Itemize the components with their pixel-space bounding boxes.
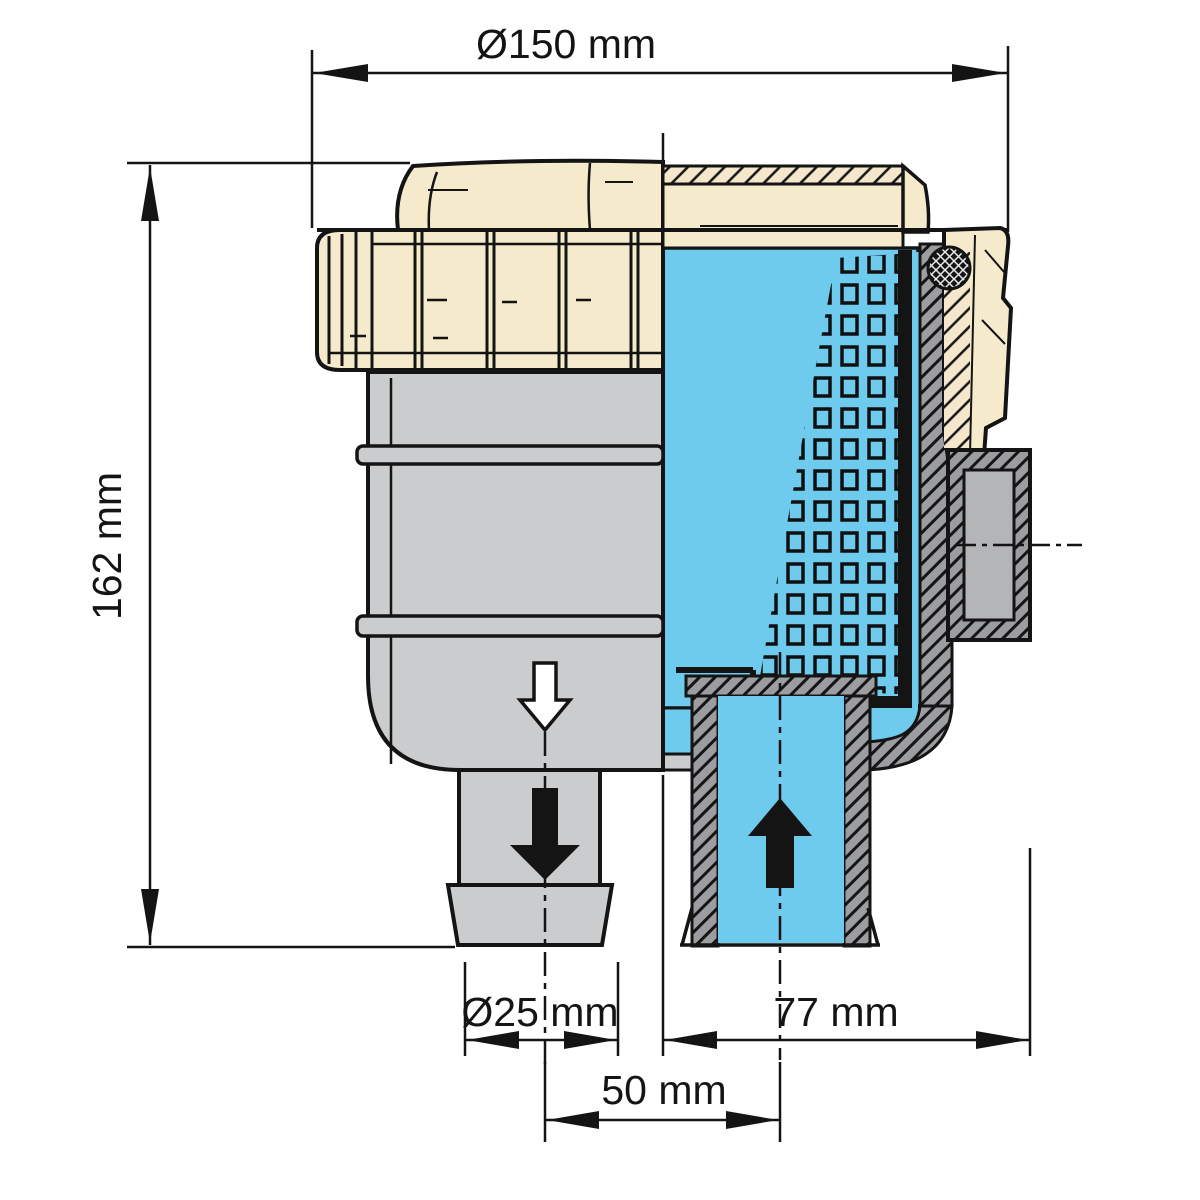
water-pocket bbox=[663, 708, 692, 756]
dim-arrow-left-icon bbox=[665, 1031, 717, 1049]
dim-label-spigot-spacing: 50 mm bbox=[601, 1067, 726, 1113]
dim-arrow-right-icon bbox=[952, 64, 1006, 82]
technical-diagram-water-strainer: Ø150 mm 162 mm Ø25 mm 77 mm 50 mm bbox=[0, 0, 1200, 1200]
dim-label-lid-diameter: Ø150 mm bbox=[476, 21, 656, 67]
dim-arrow-down-icon bbox=[141, 889, 159, 943]
body-exterior bbox=[368, 372, 663, 770]
dim-label-inlet-offset: 77 mm bbox=[773, 989, 898, 1035]
strainer-cross-section-drawing: Ø150 mm 162 mm Ø25 mm 77 mm 50 mm bbox=[0, 0, 1200, 1200]
dim-label-spigot-diameter: Ø25 mm bbox=[461, 989, 618, 1035]
o-ring-seal bbox=[928, 247, 970, 289]
lid-top-section bbox=[663, 166, 903, 184]
dim-arrow-right-icon bbox=[726, 1111, 778, 1129]
inlet-tube-wall-right bbox=[844, 696, 870, 946]
lid-rim-exterior bbox=[317, 230, 663, 370]
dim-label-overall-height: 162 mm bbox=[84, 472, 130, 620]
dim-arrow-right-icon bbox=[976, 1031, 1028, 1049]
dim-arrow-left-icon bbox=[547, 1111, 599, 1129]
outlet-pipe-barb bbox=[448, 885, 612, 945]
dim-arrow-left-icon bbox=[314, 64, 368, 82]
outlet-pipe bbox=[459, 770, 600, 885]
lid-underside-section bbox=[663, 184, 903, 248]
strainer-device bbox=[317, 133, 1082, 1065]
body-step bbox=[663, 754, 692, 770]
body-band-lower bbox=[357, 616, 663, 636]
body-band-upper bbox=[357, 446, 663, 464]
inlet-tube-wall-left bbox=[692, 696, 718, 946]
basket-wall-section bbox=[898, 250, 912, 708]
lid-dome-right-edge bbox=[903, 166, 929, 232]
lid-dome-exterior bbox=[397, 161, 663, 230]
dim-arrow-up-icon bbox=[141, 167, 159, 221]
